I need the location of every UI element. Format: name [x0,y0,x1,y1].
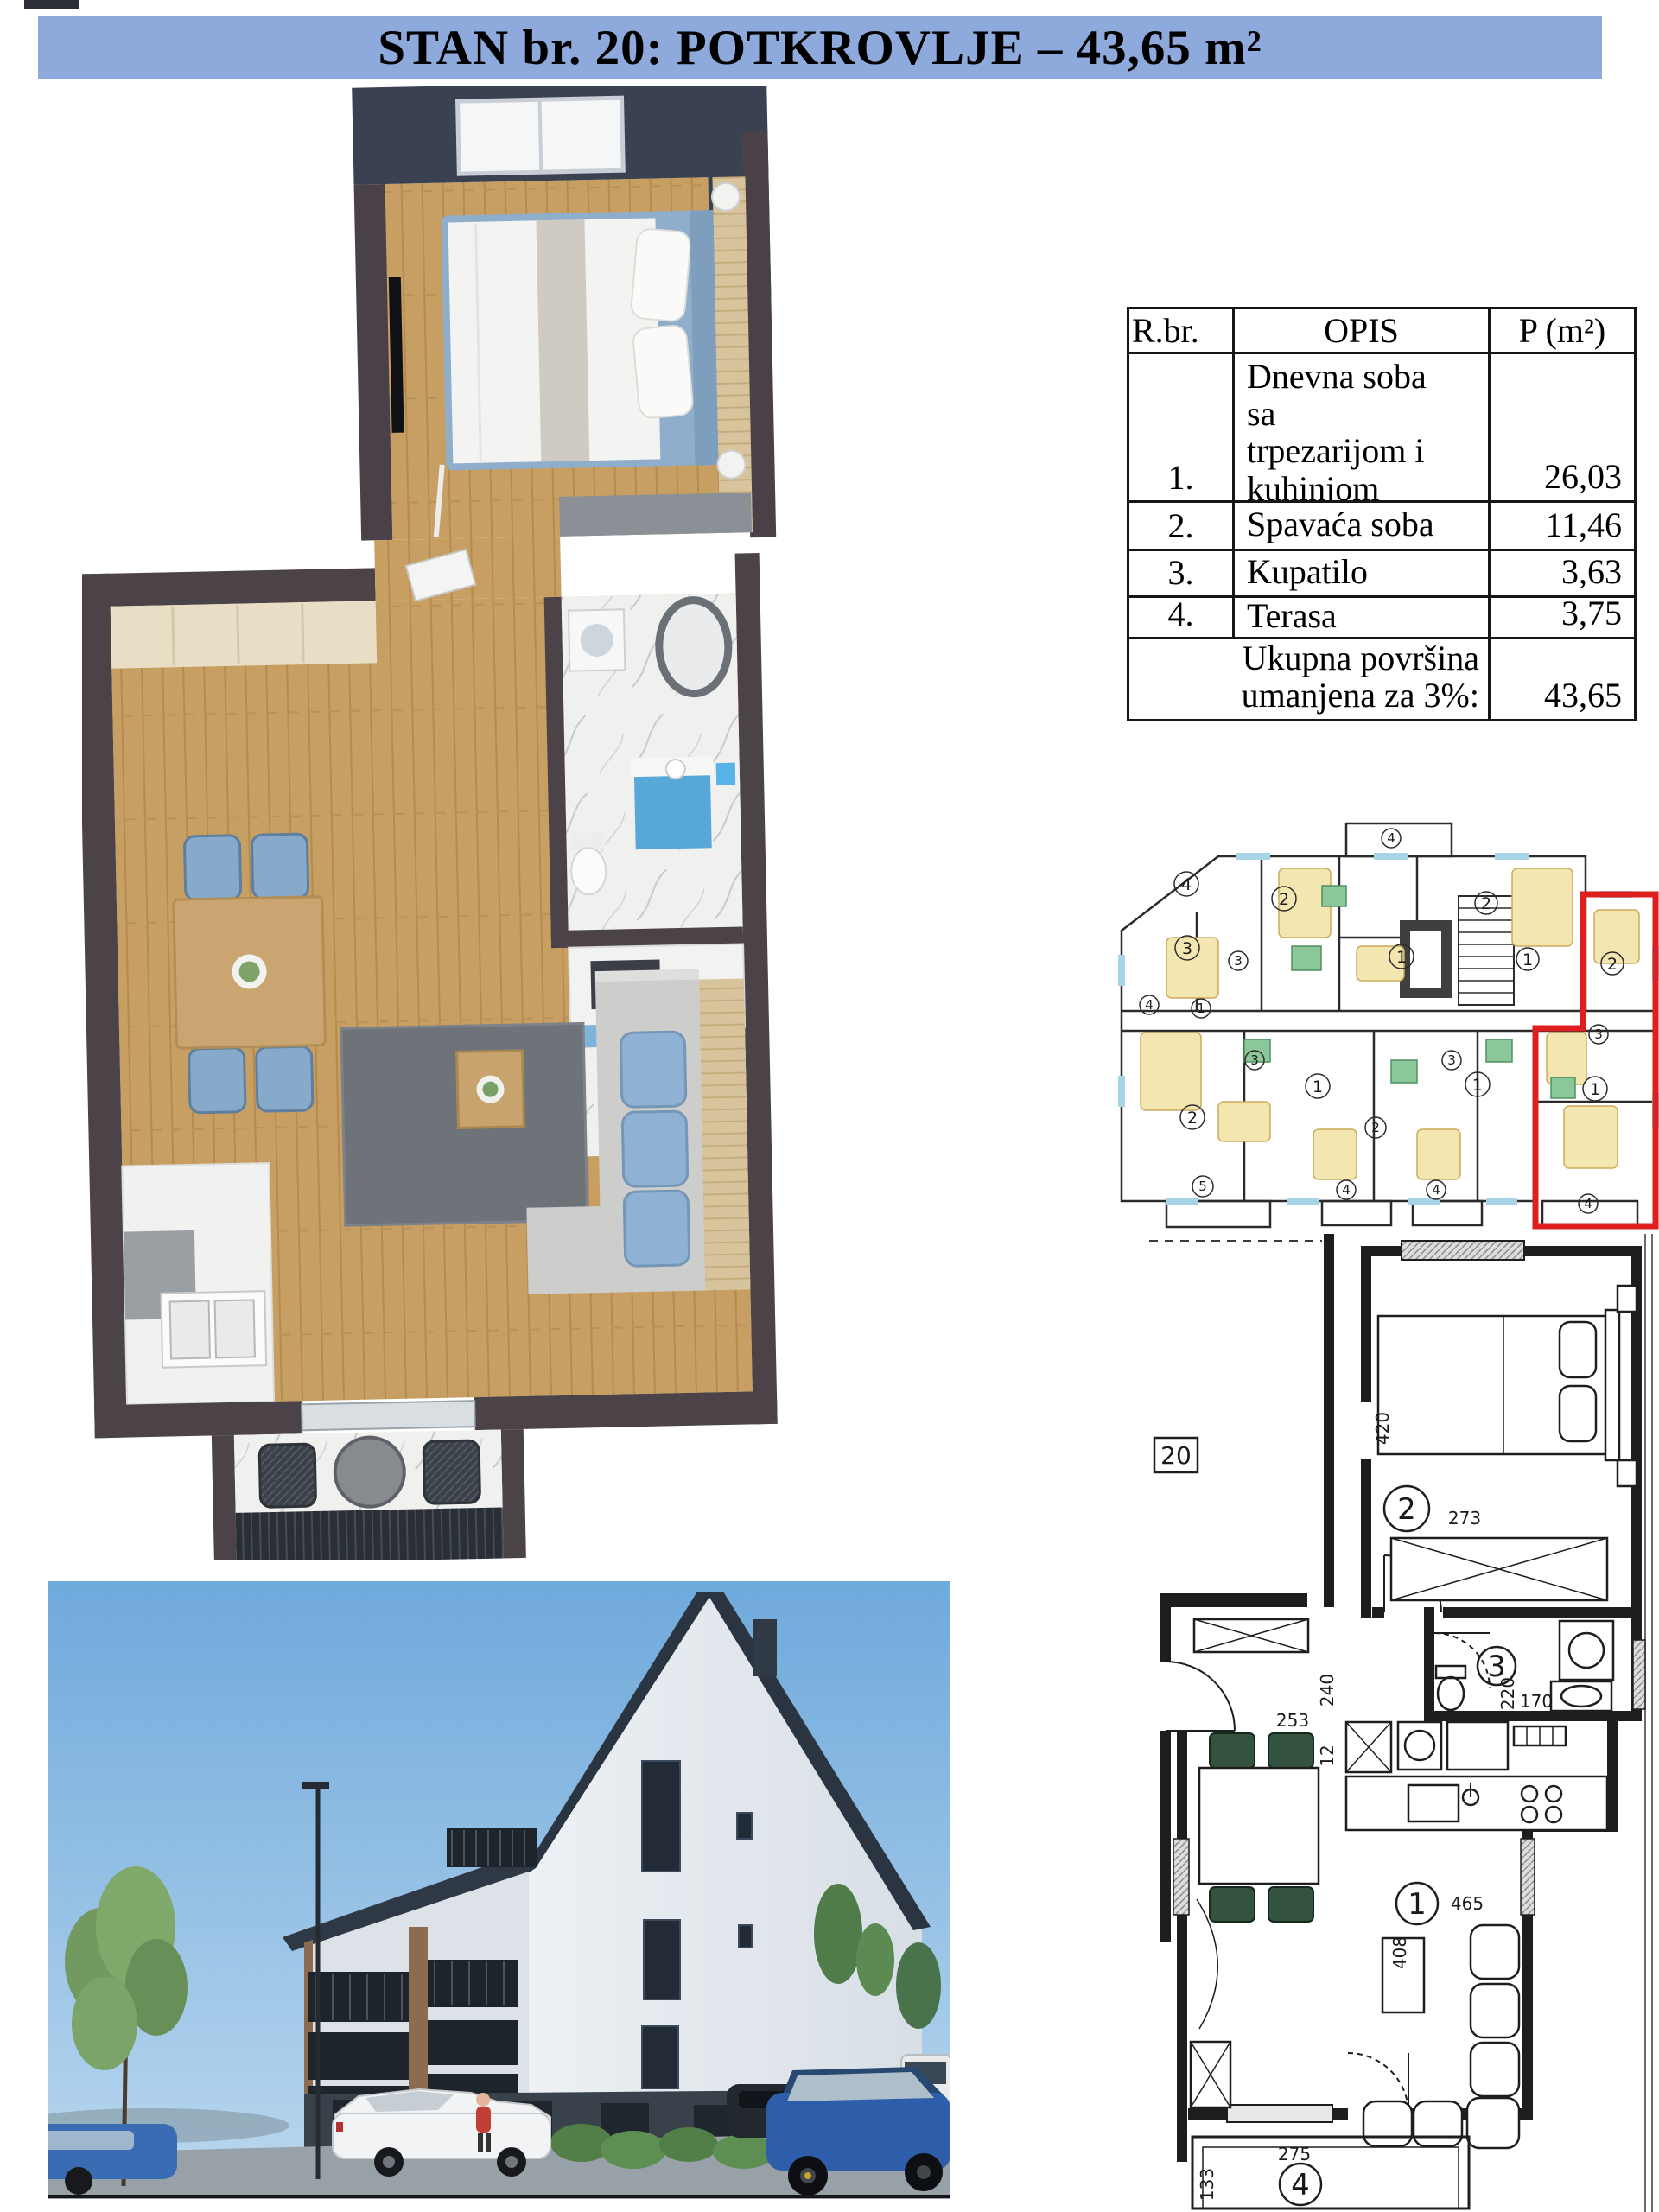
row4-desc: Terasa [1235,598,1491,639]
svg-text:2: 2 [1481,894,1491,913]
svg-text:4: 4 [1145,997,1154,1013]
row3-desc: Kupatilo [1235,551,1491,598]
left-counter [122,1163,274,1404]
table-footer-value: 43,65 [1491,639,1634,719]
svg-text:170: 170 [1520,1691,1553,1712]
col-header-rbr: R.br. [1129,309,1235,354]
dresser [559,493,752,537]
building-floor-plan: 4 3 2 1 3 4 1 2 3 1 2 1 3 5 4 4 2 3 1 4 … [1115,817,1659,1230]
terrace-outline [1192,2137,1469,2209]
terrace-chair [423,1440,480,1503]
overview-furniture [1141,868,1639,1179]
svg-text:1: 1 [1396,948,1407,967]
bedroom-furniture [1378,1286,1637,1600]
title-bar: STAN br. 20: POTKROVLJE – 43,65 m² [38,16,1602,79]
row2-desc: Spavaća soba [1235,503,1491,551]
svg-text:3: 3 [1447,1052,1456,1068]
row1-area: 26,03 [1491,354,1634,503]
terrace-table [334,1437,405,1508]
svg-text:3: 3 [1250,1052,1259,1068]
page-title: STAN br. 20: POTKROVLJE – 43,65 m² [378,20,1262,76]
svg-text:3: 3 [1594,1027,1603,1042]
row3-area: 3,63 [1491,551,1634,598]
apartment-3d-plan [82,86,782,1560]
page: STAN br. 20: POTKROVLJE – 43,65 m² [0,0,1659,2212]
svg-text:220: 220 [1497,1677,1518,1710]
svg-text:1: 1 [1472,1076,1483,1095]
building-photo [48,1581,950,2199]
hall-wardrobe [1194,1619,1308,1652]
row4-area: 3,75 [1491,598,1634,639]
bedroom-3d [352,86,776,546]
plan3d-body [82,86,782,1560]
terrace-chair [259,1444,315,1507]
svg-text:2: 2 [1397,1492,1416,1527]
row2-area: 11,46 [1491,503,1634,551]
kitchen-fixtures [1346,1722,1607,1830]
svg-text:253: 253 [1276,1710,1309,1731]
svg-text:1: 1 [1197,1001,1205,1016]
svg-text:2: 2 [1371,1120,1380,1135]
svg-text:5: 5 [1198,1179,1207,1194]
svg-text:465: 465 [1451,1893,1484,1914]
svg-text:2: 2 [1607,955,1618,974]
svg-text:12: 12 [1317,1745,1338,1766]
svg-text:20: 20 [1160,1441,1192,1470]
col-header-opis: OPIS [1235,309,1491,354]
svg-text:1: 1 [1408,1887,1427,1922]
col-header-area: P (m²) [1491,309,1634,354]
toilet [571,848,607,895]
lamp [712,182,741,211]
svg-text:420: 420 [1372,1412,1393,1445]
svg-text:4: 4 [1387,830,1395,846]
svg-text:240: 240 [1317,1674,1338,1707]
terrace-door [302,1401,475,1430]
svg-text:1: 1 [1313,1077,1323,1096]
bed [441,210,718,471]
svg-text:275: 275 [1278,2144,1311,2164]
svg-text:3: 3 [1182,939,1192,958]
svg-text:133: 133 [1197,2168,1217,2201]
vanity [634,775,712,849]
svg-text:2: 2 [1279,890,1289,909]
svg-text:1: 1 [1522,950,1533,969]
bathtub [658,600,729,695]
apartment-number-box: 20 [1154,1438,1198,1472]
row2-num: 2. [1129,503,1235,551]
photo-bottom-edge [48,2195,950,2198]
unit-2d-plan: 20 2 3 1 4 420 273 240 253 220 170 12 46… [1123,1234,1659,2212]
row4-num: 4. [1129,598,1235,639]
coffee-table [457,1051,524,1128]
svg-text:4: 4 [1584,1196,1592,1211]
living-3d [82,532,778,1438]
table-footer-label: Ukupna površina umanjena za 3%: [1129,639,1491,719]
dining-furniture [1199,1733,1319,1922]
row1-num: 1. [1129,354,1235,503]
svg-text:408: 408 [1389,1936,1410,1969]
svg-text:3: 3 [1234,953,1243,969]
lamp [717,450,746,479]
page-corner-mark [24,0,79,9]
terrace-3d [212,1429,526,1560]
svg-text:4: 4 [1291,2168,1310,2202]
row1-desc: Dnevna soba sa trpezarijom i kuhinjom [1235,354,1491,503]
svg-text:4: 4 [1181,875,1192,894]
row3-num: 3. [1129,551,1235,598]
svg-text:2: 2 [1187,1109,1198,1128]
bathroom-3d [544,594,743,949]
area-table: R.br. OPIS P (m²) 1. Dnevna soba sa trpe… [1127,307,1637,721]
svg-text:4: 4 [1342,1182,1351,1198]
svg-text:4: 4 [1432,1182,1440,1198]
svg-text:1: 1 [1590,1080,1600,1099]
svg-text:273: 273 [1448,1508,1481,1529]
